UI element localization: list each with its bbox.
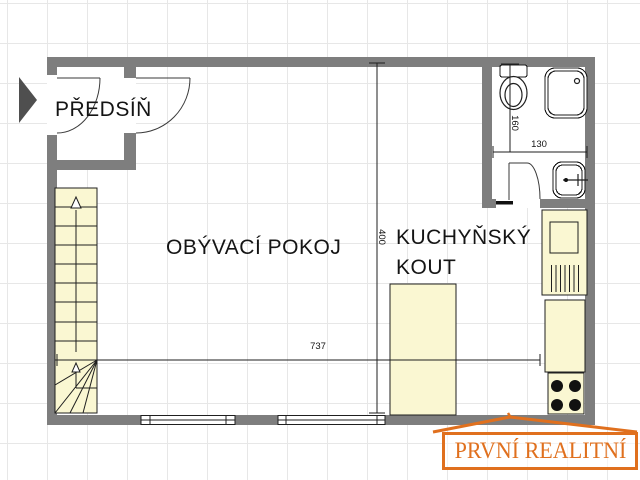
logo-roof-icon [430, 412, 640, 434]
kitchen-island [390, 284, 456, 415]
shower [545, 68, 587, 118]
room-label-kitchenette-line2: KOUT [396, 256, 456, 280]
dimension-label-400: 400 [375, 222, 387, 252]
drainer-hatching [552, 265, 579, 292]
stove [548, 373, 584, 414]
room-label-living-room: OBÝVACÍ POKOJ [166, 236, 341, 260]
kitchen-sink-unit [542, 210, 587, 295]
dimension-label-737: 737 [296, 341, 340, 353]
watermark-logo: PRVNÍ REALITNÍ [430, 412, 640, 474]
sink [553, 162, 588, 198]
kitchen-counter [542, 210, 587, 414]
logo-frame: PRVNÍ REALITNÍ [442, 432, 638, 470]
room-label-hallway: PŘEDSÍŇ [55, 98, 152, 122]
entrance-arrow [19, 77, 37, 123]
window [141, 416, 235, 425]
window [278, 416, 385, 425]
floor-plan-page: PŘEDSÍŇ OBÝVACÍ POKOJ KUCHYŇSKÝ KOUT 737… [0, 0, 640, 480]
room-label-kitchenette-line1: KUCHYŇSKÝ [396, 226, 531, 250]
dimension-label-130: 130 [517, 139, 561, 151]
dimension-label-160: 160 [508, 108, 520, 138]
toilet [500, 65, 527, 110]
staircase [55, 188, 97, 413]
logo-text: PRVNÍ REALITNÍ [454, 438, 626, 464]
stair-winder [55, 360, 97, 413]
dimension-line-737 [55, 354, 540, 366]
kitchen-cabinet [545, 300, 585, 372]
